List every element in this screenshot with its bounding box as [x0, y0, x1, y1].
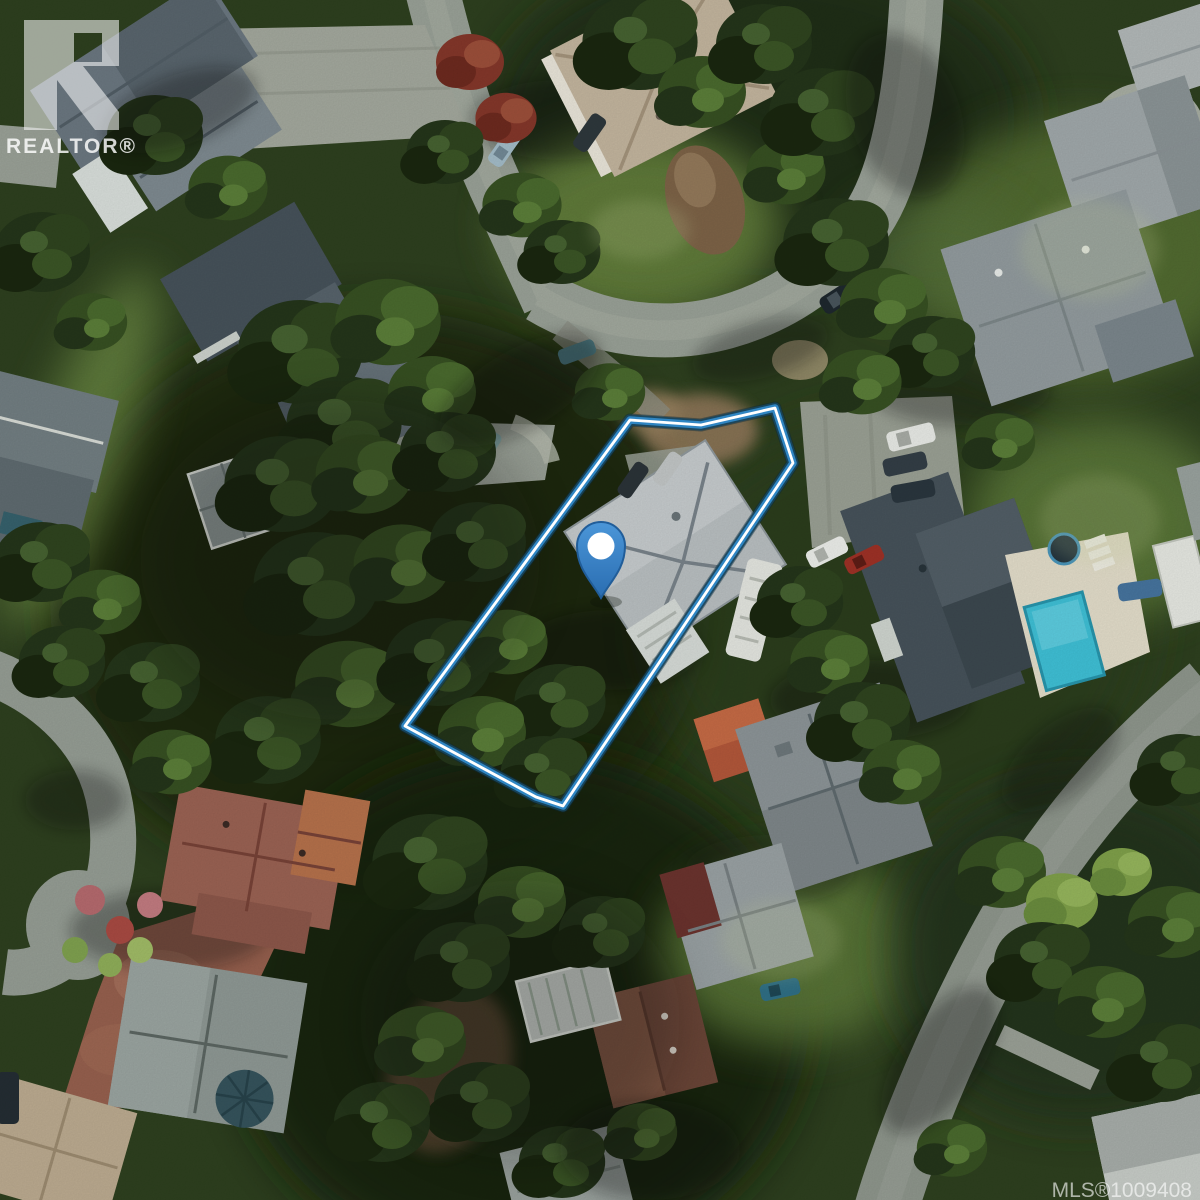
mls-watermark: MLS®1009408	[1052, 1179, 1192, 1200]
aerial-scene: REALTOR® MLS®1009408	[0, 0, 1200, 1200]
pin-shadow	[590, 596, 622, 608]
realtor-label: REALTOR®	[6, 135, 137, 158]
satellite-map[interactable]: REALTOR® MLS®1009408	[0, 0, 1200, 1200]
pin-dot	[588, 533, 615, 560]
